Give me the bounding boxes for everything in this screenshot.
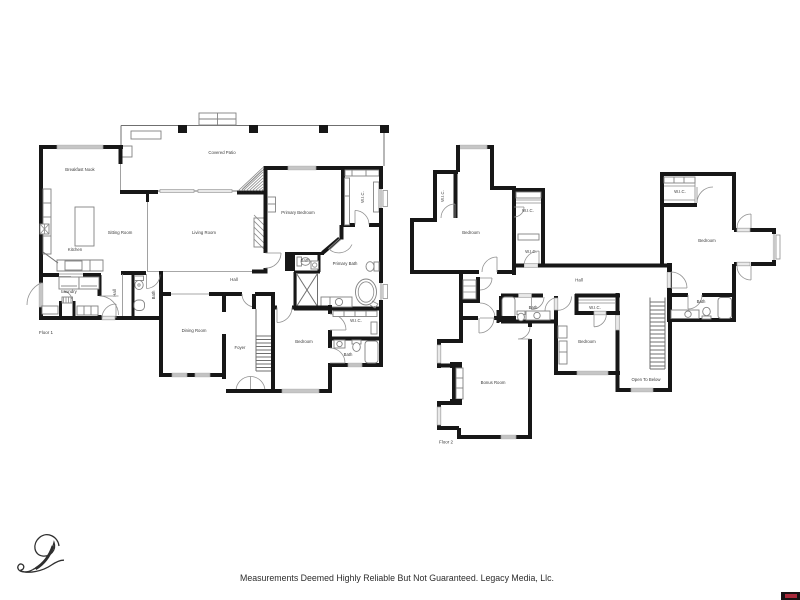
svg-text:Bonus Room: Bonus Room	[481, 380, 506, 385]
svg-text:W.I.C.: W.I.C.	[674, 189, 686, 194]
svg-text:Bedroom: Bedroom	[698, 238, 716, 243]
svg-text:Primary Bath: Primary Bath	[333, 261, 358, 266]
svg-text:W.I.C.: W.I.C.	[525, 249, 537, 254]
svg-text:Laundry: Laundry	[61, 289, 77, 294]
svg-text:Living Room: Living Room	[192, 230, 216, 235]
svg-text:Open To Below: Open To Below	[631, 377, 661, 382]
svg-text:Bath: Bath	[529, 305, 538, 310]
svg-text:Covered Patio: Covered Patio	[208, 150, 236, 155]
svg-text:Bath: Bath	[151, 290, 156, 299]
svg-text:W.I.C.: W.I.C.	[522, 208, 534, 213]
svg-text:Bath: Bath	[344, 352, 353, 357]
svg-text:Dining Room: Dining Room	[182, 328, 207, 333]
svg-text:Bedroom: Bedroom	[295, 339, 313, 344]
svg-text:Breakfast Nook: Breakfast Nook	[65, 167, 95, 172]
svg-text:Foyer: Foyer	[235, 345, 247, 350]
svg-text:Hall: Hall	[575, 278, 582, 283]
svg-text:Bedroom: Bedroom	[462, 230, 480, 235]
svg-text:Primary Bedroom: Primary Bedroom	[281, 210, 315, 215]
svg-text:W.I.C.: W.I.C.	[360, 191, 365, 203]
svg-text:Floor 1: Floor 1	[39, 330, 54, 335]
svg-text:W.I.C.: W.I.C.	[350, 318, 362, 323]
svg-text:Bath: Bath	[697, 299, 706, 304]
svg-text:Bath: Bath	[301, 258, 310, 263]
svg-text:Bedroom: Bedroom	[578, 339, 596, 344]
svg-text:Floor 2: Floor 2	[439, 440, 454, 445]
svg-text:Sitting Room: Sitting Room	[108, 230, 133, 235]
svg-text:Measurements Deemed Highly Rel: Measurements Deemed Highly Reliable But …	[240, 573, 554, 583]
svg-text:W.I.C.: W.I.C.	[440, 190, 445, 202]
svg-text:Hall: Hall	[112, 289, 117, 296]
svg-text:Hall: Hall	[230, 277, 237, 282]
svg-text:Kitchen: Kitchen	[68, 247, 83, 252]
svg-text:W.I.C.: W.I.C.	[589, 305, 601, 310]
